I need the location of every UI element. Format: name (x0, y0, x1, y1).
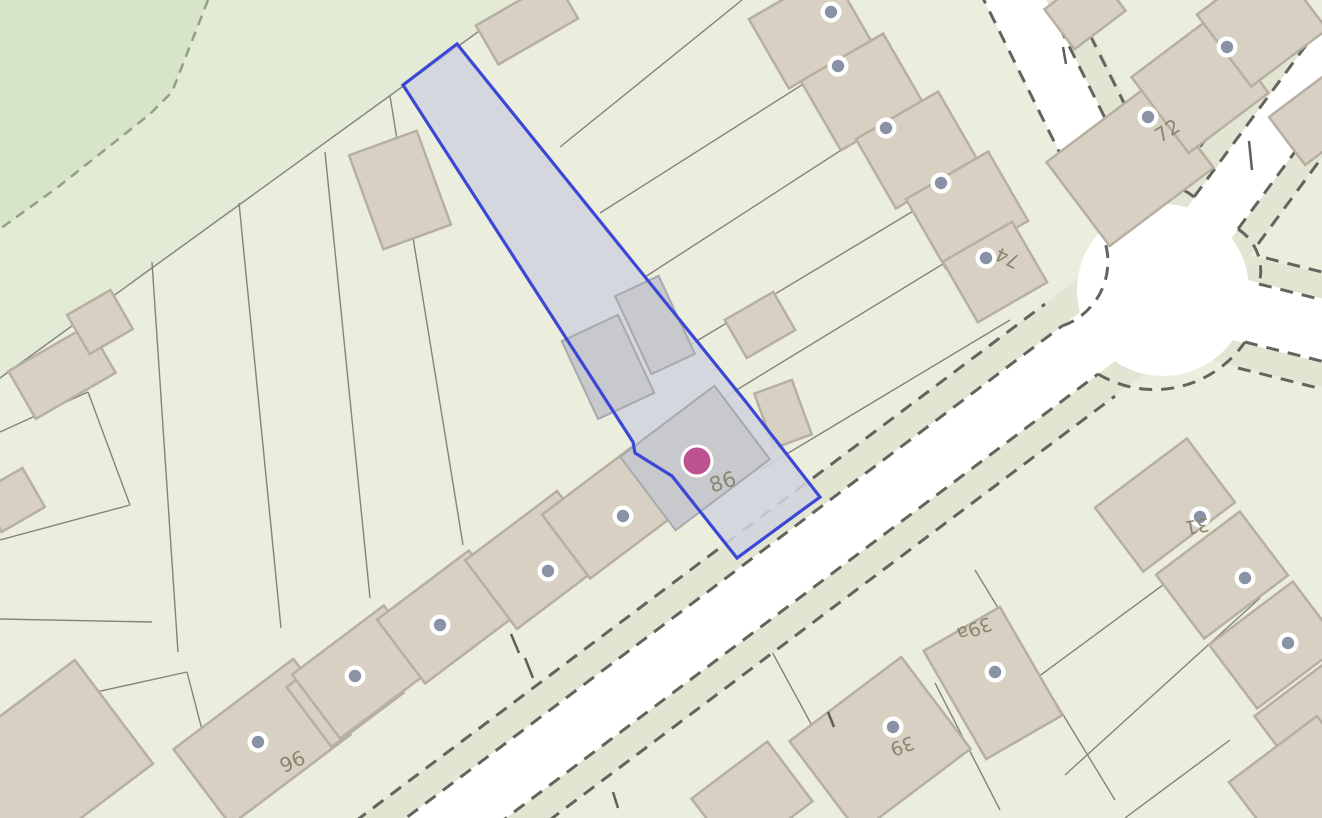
address-dot (876, 118, 897, 139)
house-number-label: 31 (1183, 513, 1211, 539)
address-dot (1235, 568, 1256, 589)
address-dot (828, 56, 849, 77)
address-dot (883, 717, 904, 738)
address-dot (538, 561, 559, 582)
map-frame: 869672743139a39 (0, 0, 1322, 818)
address-dot (821, 2, 842, 23)
selected-property-marker[interactable] (681, 445, 714, 478)
address-dot (976, 248, 997, 269)
address-dot (345, 666, 366, 687)
address-dot (430, 615, 451, 636)
address-dot (1278, 633, 1299, 654)
address-dot (931, 173, 952, 194)
marker-layer (681, 445, 714, 478)
address-dot (985, 662, 1006, 683)
address-dot (248, 732, 269, 753)
address-dot (613, 506, 634, 527)
map-canvas[interactable]: 869672743139a39 (0, 0, 1322, 818)
address-dot (1217, 37, 1238, 58)
